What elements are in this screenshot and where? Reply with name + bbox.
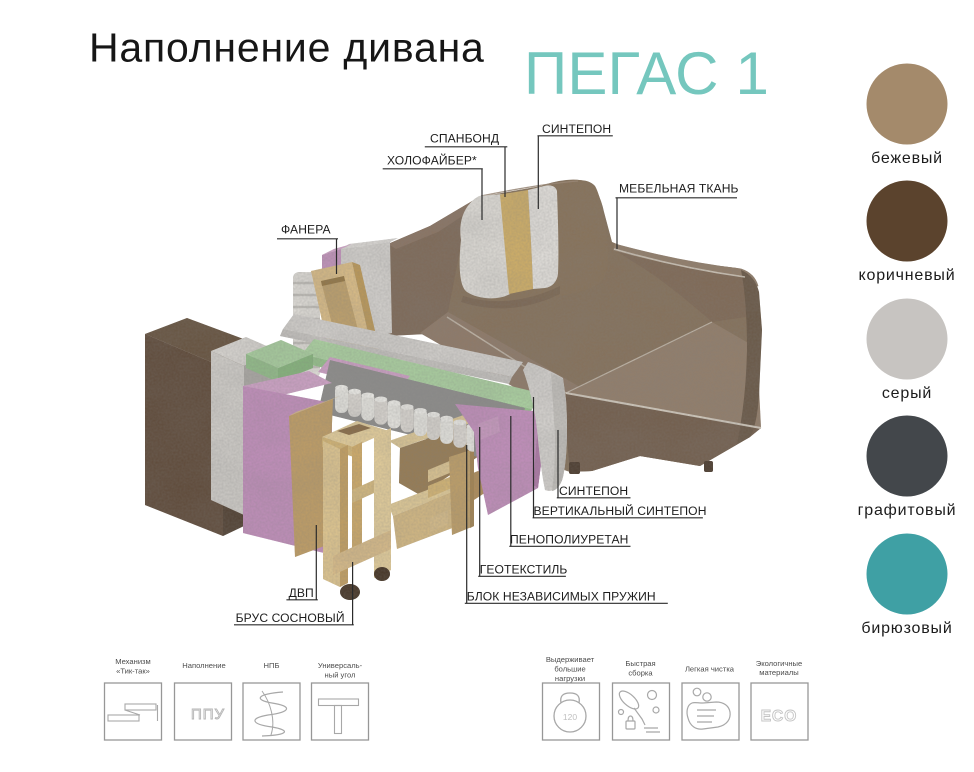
svg-text:ГЕОТЕКСТИЛЬ: ГЕОТЕКСТИЛЬ: [480, 563, 568, 577]
svg-text:Легкая чистка: Легкая чистка: [685, 665, 735, 674]
svg-text:«Тик-так»: «Тик-так»: [116, 667, 150, 676]
svg-text:Выдерживает: Выдерживает: [546, 655, 595, 664]
svg-text:БРУС СОСНОВЫЙ: БРУС СОСНОВЫЙ: [236, 610, 345, 625]
svg-text:ный угол: ный угол: [325, 671, 356, 680]
svg-text:ВЕРТИКАЛЬНЫЙ СИНТЕПОН: ВЕРТИКАЛЬНЫЙ СИНТЕПОН: [534, 503, 707, 518]
svg-text:Экологичные: Экологичные: [756, 659, 803, 668]
svg-text:ДВП: ДВП: [289, 586, 314, 600]
svg-text:Быстрая: Быстрая: [625, 659, 655, 668]
svg-text:сборка: сборка: [628, 669, 653, 678]
svg-text:большие: большие: [554, 665, 585, 674]
svg-text:Наполнение: Наполнение: [182, 661, 225, 670]
svg-text:ECO: ECO: [761, 708, 798, 725]
svg-text:ПЕНОПОЛИУРЕТАН: ПЕНОПОЛИУРЕТАН: [510, 533, 629, 547]
svg-text:120: 120: [563, 712, 577, 722]
svg-text:коричневый: коричневый: [859, 267, 956, 284]
svg-text:Универсаль-: Универсаль-: [318, 661, 363, 670]
svg-text:ПЕГАС 1: ПЕГАС 1: [524, 40, 769, 107]
svg-text:НПБ: НПБ: [264, 661, 280, 670]
svg-text:ХОЛОФАЙБЕР*: ХОЛОФАЙБЕР*: [387, 153, 477, 168]
svg-text:Наполнение дивана: Наполнение дивана: [89, 25, 485, 71]
svg-text:ФАНЕРА: ФАНЕРА: [281, 223, 332, 237]
svg-text:бежевый: бежевый: [871, 150, 943, 167]
svg-text:ППУ: ППУ: [191, 706, 225, 723]
svg-text:БЛОК НЕЗАВИСИМЫХ ПРУЖИН: БЛОК НЕЗАВИСИМЫХ ПРУЖИН: [467, 590, 656, 604]
svg-text:МЕБЕЛЬНАЯ ТКАНЬ: МЕБЕЛЬНАЯ ТКАНЬ: [619, 182, 739, 196]
svg-text:серый: серый: [882, 385, 932, 402]
svg-text:СПАНБОНД: СПАНБОНД: [430, 132, 499, 146]
svg-text:Механизм: Механизм: [115, 657, 151, 666]
svg-text:графитовый: графитовый: [858, 502, 957, 519]
svg-text:бирюзовый: бирюзовый: [861, 620, 952, 637]
svg-text:материалы: материалы: [759, 668, 798, 677]
svg-text:нагрузки: нагрузки: [555, 674, 585, 683]
svg-text:СИНТЕПОН: СИНТЕПОН: [542, 122, 611, 136]
svg-text:СИНТЕПОН: СИНТЕПОН: [559, 484, 628, 498]
